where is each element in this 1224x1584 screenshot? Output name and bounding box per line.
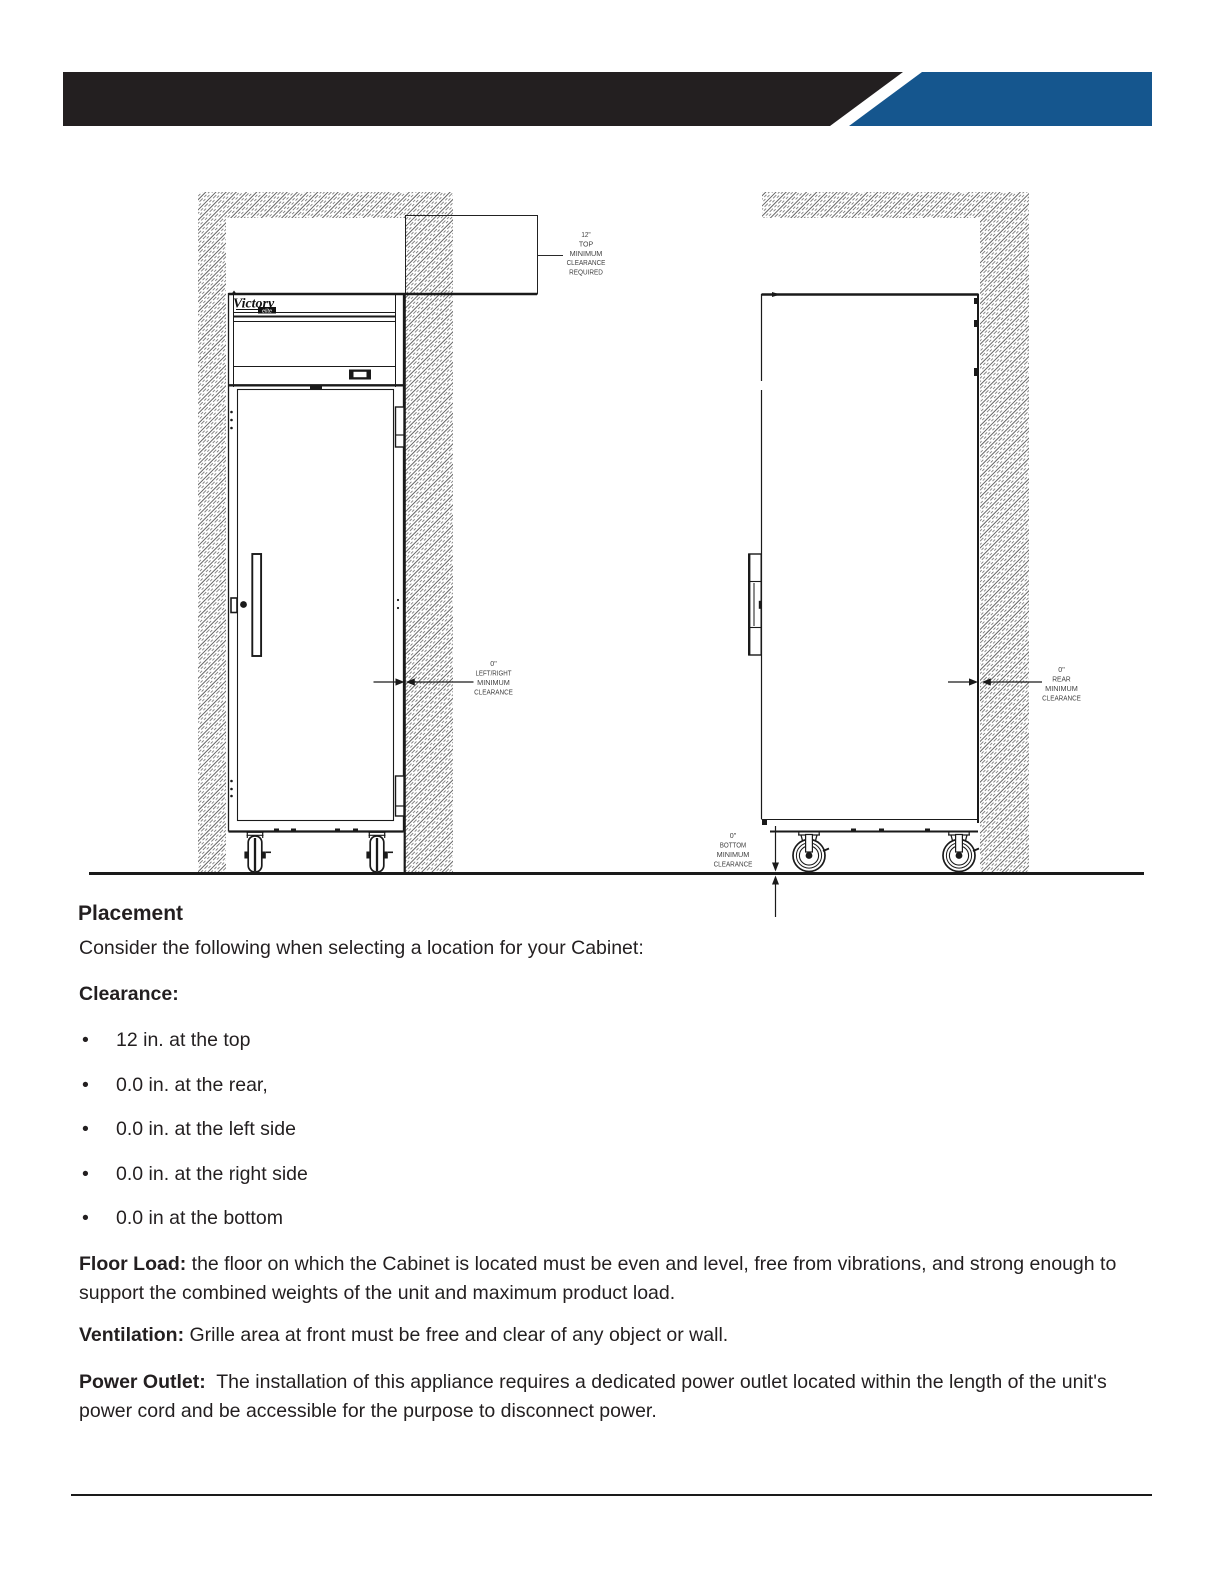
svg-text:BOTTOM: BOTTOM xyxy=(720,841,747,850)
svg-text:LEFT/RIGHT: LEFT/RIGHT xyxy=(475,669,512,678)
svg-text:0": 0" xyxy=(730,831,737,840)
svg-text:REAR: REAR xyxy=(1052,675,1071,684)
svg-text:REQUIRED: REQUIRED xyxy=(569,268,603,277)
svg-text:0": 0" xyxy=(490,659,497,668)
svg-text:CLEARANCE: CLEARANCE xyxy=(474,688,513,697)
svg-text:MINIMUM: MINIMUM xyxy=(477,678,510,687)
svg-text:CLEARANCE: CLEARANCE xyxy=(1042,694,1081,703)
svg-text:MINIMUM: MINIMUM xyxy=(1045,684,1078,693)
svg-text:0": 0" xyxy=(1058,665,1065,674)
svg-text:TOP: TOP xyxy=(579,239,593,248)
svg-text:12": 12" xyxy=(581,230,591,239)
svg-text:elite: elite xyxy=(262,308,272,314)
svg-text:MINIMUM: MINIMUM xyxy=(717,850,750,859)
svg-text:MINIMUM: MINIMUM xyxy=(570,249,603,258)
svg-text:CLEARANCE: CLEARANCE xyxy=(567,258,606,267)
svg-text:CLEARANCE: CLEARANCE xyxy=(714,860,753,869)
